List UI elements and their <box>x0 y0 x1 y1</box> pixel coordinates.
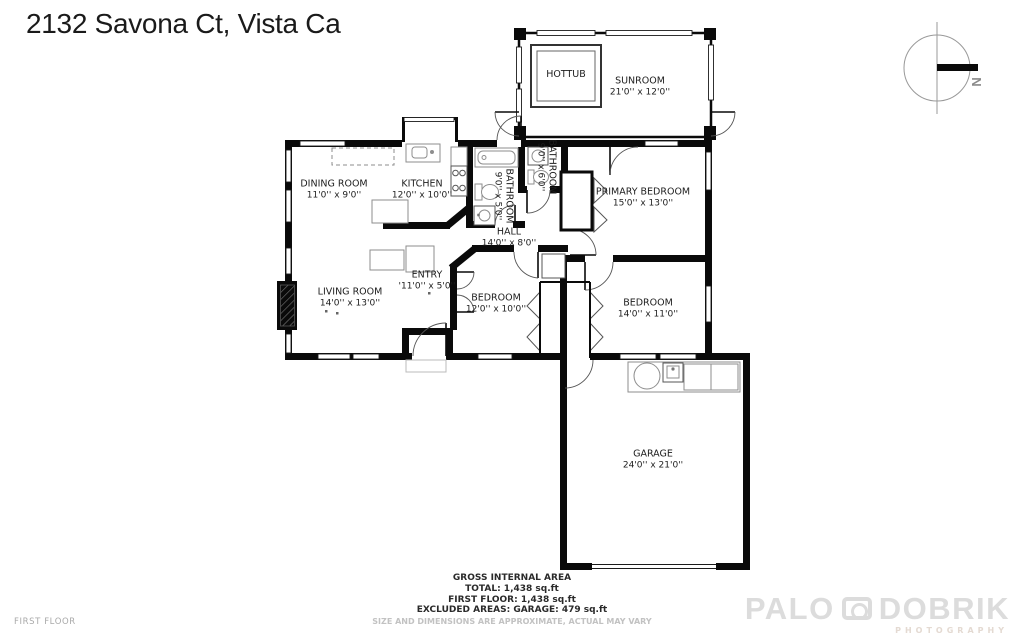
room-label-hottub: HOTTUB <box>546 69 586 81</box>
floorplan-page: 2132 Savona Ct, Vista Ca <box>0 0 1024 639</box>
area-summary: GROSS INTERNAL AREA TOTAL: 1,438 sq.ft F… <box>372 573 651 627</box>
floor-label: FIRST FLOOR <box>14 617 76 627</box>
watermark-wordmark: PALO DOBRIK <box>745 593 1010 624</box>
room-label-living-room: LIVING ROOM 14'0'' x 13'0'' <box>318 286 383 309</box>
area-excluded: EXCLUDED AREAS: GARAGE: 479 sq.ft <box>372 605 651 616</box>
compass-icon: N <box>904 22 984 114</box>
room-label-dining: DINING ROOM 11'0'' x 9'0'' <box>300 178 367 201</box>
room-label-entry: ENTRY '11'0'' x 5'0'' <box>399 269 456 292</box>
area-heading: GROSS INTERNAL AREA <box>372 573 651 584</box>
fireplace <box>277 281 297 330</box>
room-label-bedroom-1: BEDROOM 12'0'' x 10'0'' <box>466 292 526 315</box>
room-label-hall: HALL 14'0'' x 8'0'' <box>482 226 537 249</box>
room-label-sunroom: SUNROOM 21'0'' x 12'0'' <box>610 75 670 98</box>
garage-door <box>592 565 716 569</box>
room-label-kitchen: KITCHEN 12'0'' x 10'0'' <box>392 178 452 201</box>
room-label-bedroom-2: BEDROOM 14'0'' x 11'0'' <box>618 297 678 320</box>
room-label-primary-bedroom: PRIMARY BEDROOM 15'0'' x 13'0'' <box>596 186 690 209</box>
compass-north-label: N <box>969 77 984 86</box>
watermark-subtitle: PHOTOGRAPHY <box>745 626 1010 635</box>
room-label-bathroom-1: BATHROOM 9'0'' x 5'0'' <box>491 169 514 224</box>
room-label-bathroom-2: BATHROOM 9'0'' x 6'0'' <box>534 140 557 195</box>
photographer-watermark: PALO DOBRIK PHOTOGRAPHY <box>745 593 1010 635</box>
camera-icon <box>842 597 872 620</box>
area-disclaimer: SIZE AND DIMENSIONS ARE APPROXIMATE, ACT… <box>372 617 651 627</box>
room-label-garage: GARAGE 24'0'' x 21'0'' <box>623 448 683 471</box>
area-total: TOTAL: 1,438 sq.ft <box>372 584 651 595</box>
area-first-floor: FIRST FLOOR: 1,438 sq.ft <box>372 595 651 606</box>
floor-plan-canvas: N <box>0 0 1024 639</box>
